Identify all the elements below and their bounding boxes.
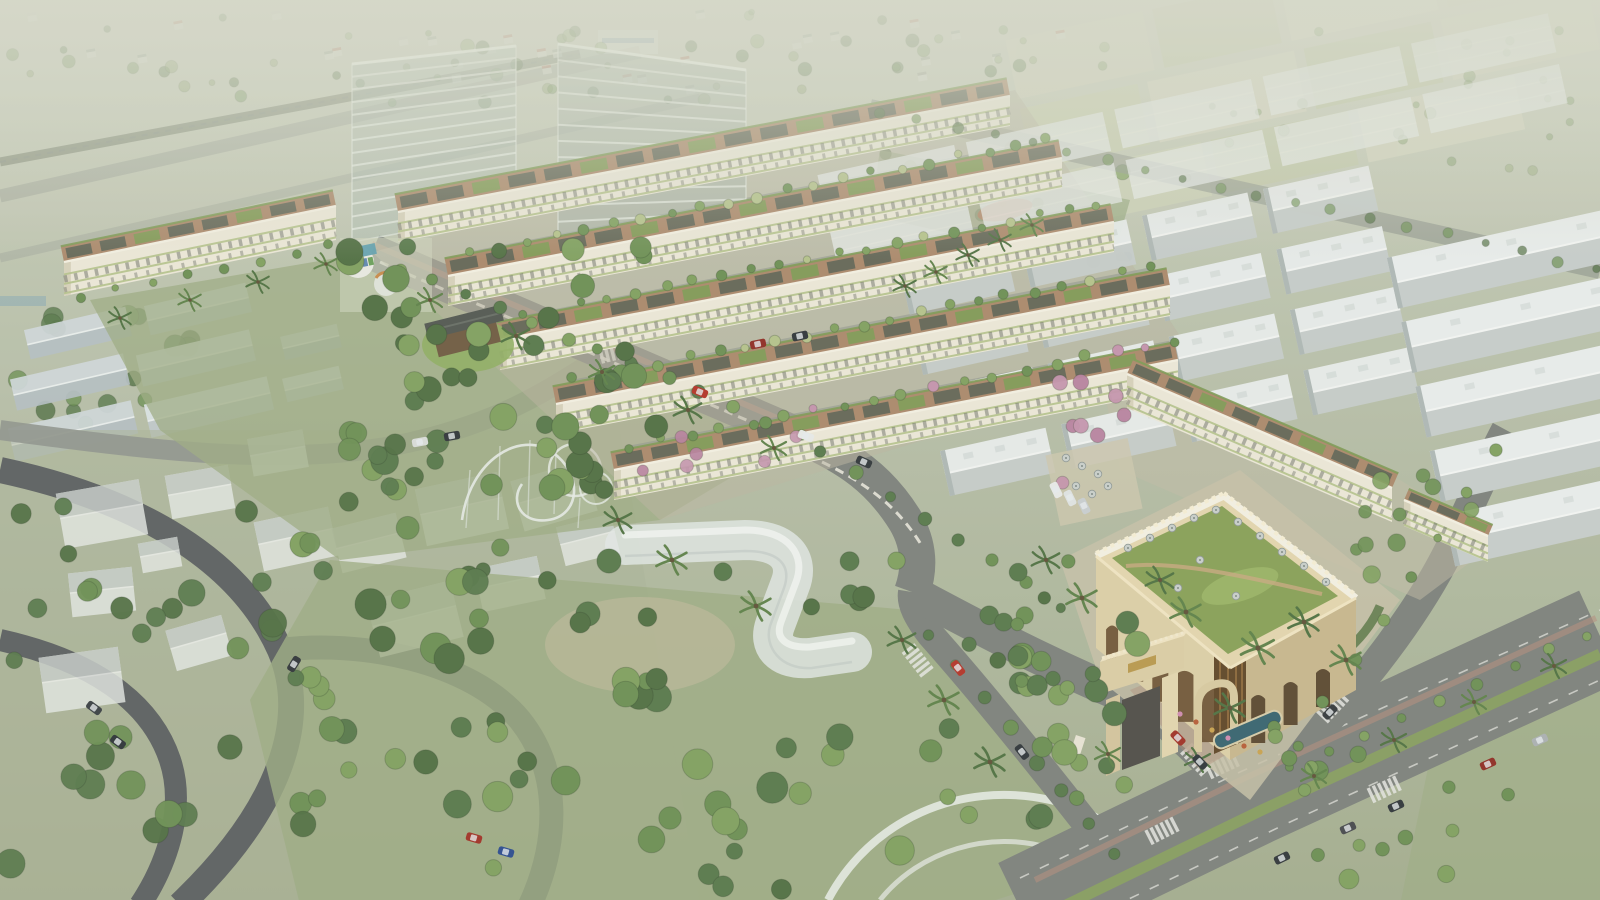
atmosphere-wash — [0, 0, 1600, 900]
masterplan-aerial-view — [0, 0, 1600, 900]
aerial-render-stage — [0, 0, 1600, 900]
